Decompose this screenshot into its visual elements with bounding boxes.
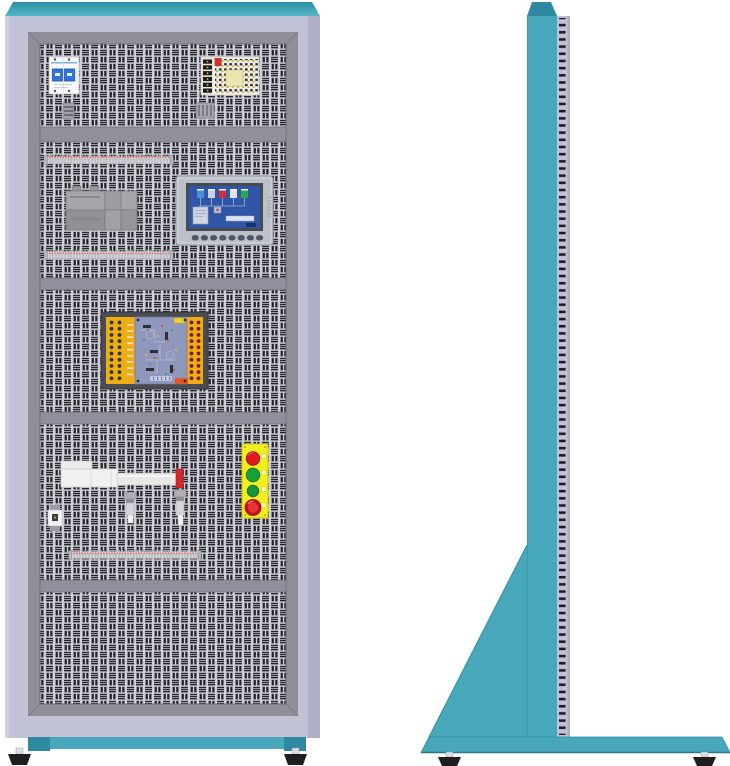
switching-power-supply (201, 57, 259, 95)
front-top-cap (5, 2, 320, 16)
psu-transformer (226, 70, 243, 86)
front-foot-left (8, 748, 31, 765)
plc-pcb (135, 317, 187, 384)
side-column (527, 15, 557, 737)
micro-relay (48, 505, 62, 531)
hmi-touch-panel: TOUCH (176, 176, 273, 245)
pushbutton-station (242, 444, 268, 518)
emergency-stop-button (245, 500, 261, 516)
cabinet-drawing: TOUCH (0, 0, 730, 766)
red-pushbutton (246, 452, 260, 466)
green-pushbutton-2 (247, 485, 259, 497)
illustration-canvas: TOUCH (0, 0, 730, 766)
terminal-rail-middle (45, 250, 173, 260)
psu-red-label (215, 58, 222, 66)
divider-3 (40, 412, 286, 424)
side-foot-right (693, 752, 716, 766)
side-view (421, 2, 730, 766)
front-bottom-corner-left (28, 737, 50, 751)
divider-1 (40, 127, 286, 142)
divider-2 (40, 278, 286, 290)
front-view: TOUCH (5, 2, 320, 765)
din-clamp-left (63, 103, 74, 119)
side-perforation-edge (559, 18, 568, 735)
circuit-breaker (49, 57, 79, 94)
side-foot-left (438, 752, 461, 766)
front-body-right-shade (308, 16, 320, 738)
terminal-rail-top (45, 155, 173, 165)
front-bottom-rail (28, 737, 306, 749)
side-top-cap (527, 2, 557, 16)
plc-yellow-label (174, 318, 185, 323)
green-pushbutton-1 (246, 468, 260, 482)
contactor-group (66, 186, 137, 230)
din-clamp-right (196, 103, 214, 118)
hmi-brand-text: TOUCH (266, 196, 272, 217)
cylinder-rod (117, 473, 177, 485)
front-body-left-highlight (5, 16, 9, 738)
plc-io-training-board (101, 312, 208, 389)
divider-4 (40, 580, 286, 592)
plc-left-labels (127, 324, 133, 375)
terminal-rail-bottom (69, 550, 201, 560)
cylinder-tip (176, 469, 183, 488)
side-base-plate (421, 737, 730, 753)
